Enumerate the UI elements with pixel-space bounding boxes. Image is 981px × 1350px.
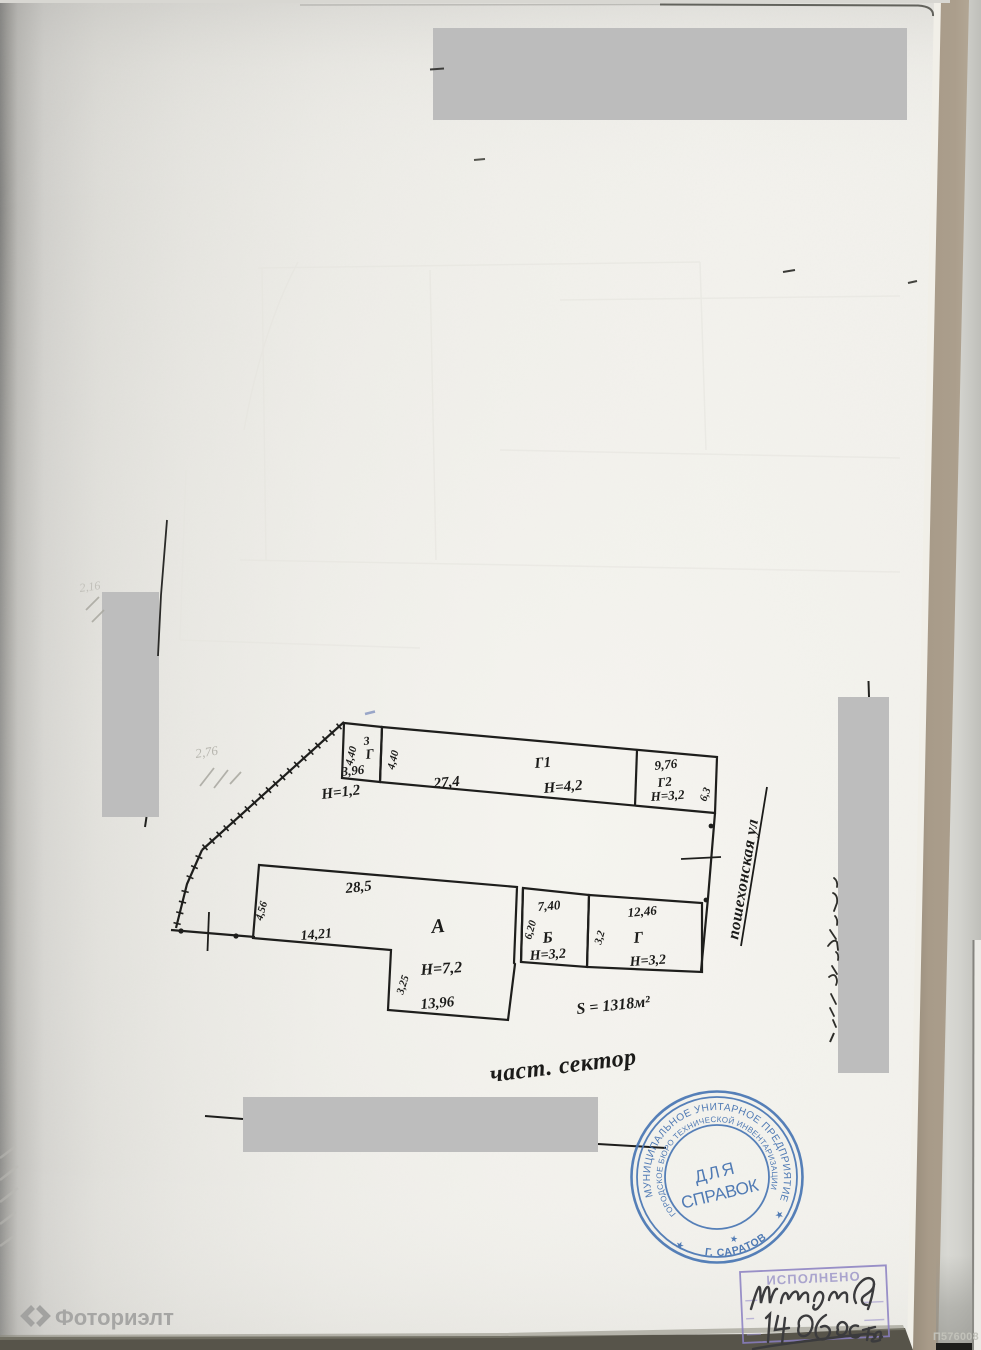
svg-text:9,76: 9,76: [654, 756, 679, 773]
svg-text:Н=7,2: Н=7,2: [419, 959, 463, 979]
svg-text:12,46: 12,46: [627, 902, 658, 920]
svg-text:Н=3,2: Н=3,2: [628, 952, 666, 970]
svg-text:3: 3: [362, 733, 370, 748]
svg-text:13,96: 13,96: [420, 994, 456, 1013]
svg-text:Г: Г: [632, 929, 644, 947]
svg-text:Г1: Г1: [533, 755, 552, 772]
svg-text:Фоториэлт: Фоториэлт: [55, 1305, 174, 1330]
svg-text:Б: Б: [541, 929, 554, 947]
svg-text:2,16: 2,16: [78, 578, 101, 595]
svg-text:Н=3,2: Н=3,2: [649, 787, 685, 804]
svg-text:П576008: П576008: [933, 1331, 979, 1343]
svg-text:27,4: 27,4: [432, 774, 461, 792]
svg-text:7,40: 7,40: [537, 897, 561, 914]
svg-text:14,21: 14,21: [300, 926, 333, 944]
svg-text:28,5: 28,5: [344, 878, 373, 897]
svg-text:Н=3,2: Н=3,2: [528, 946, 566, 964]
svg-text:★: ★: [729, 1234, 738, 1245]
